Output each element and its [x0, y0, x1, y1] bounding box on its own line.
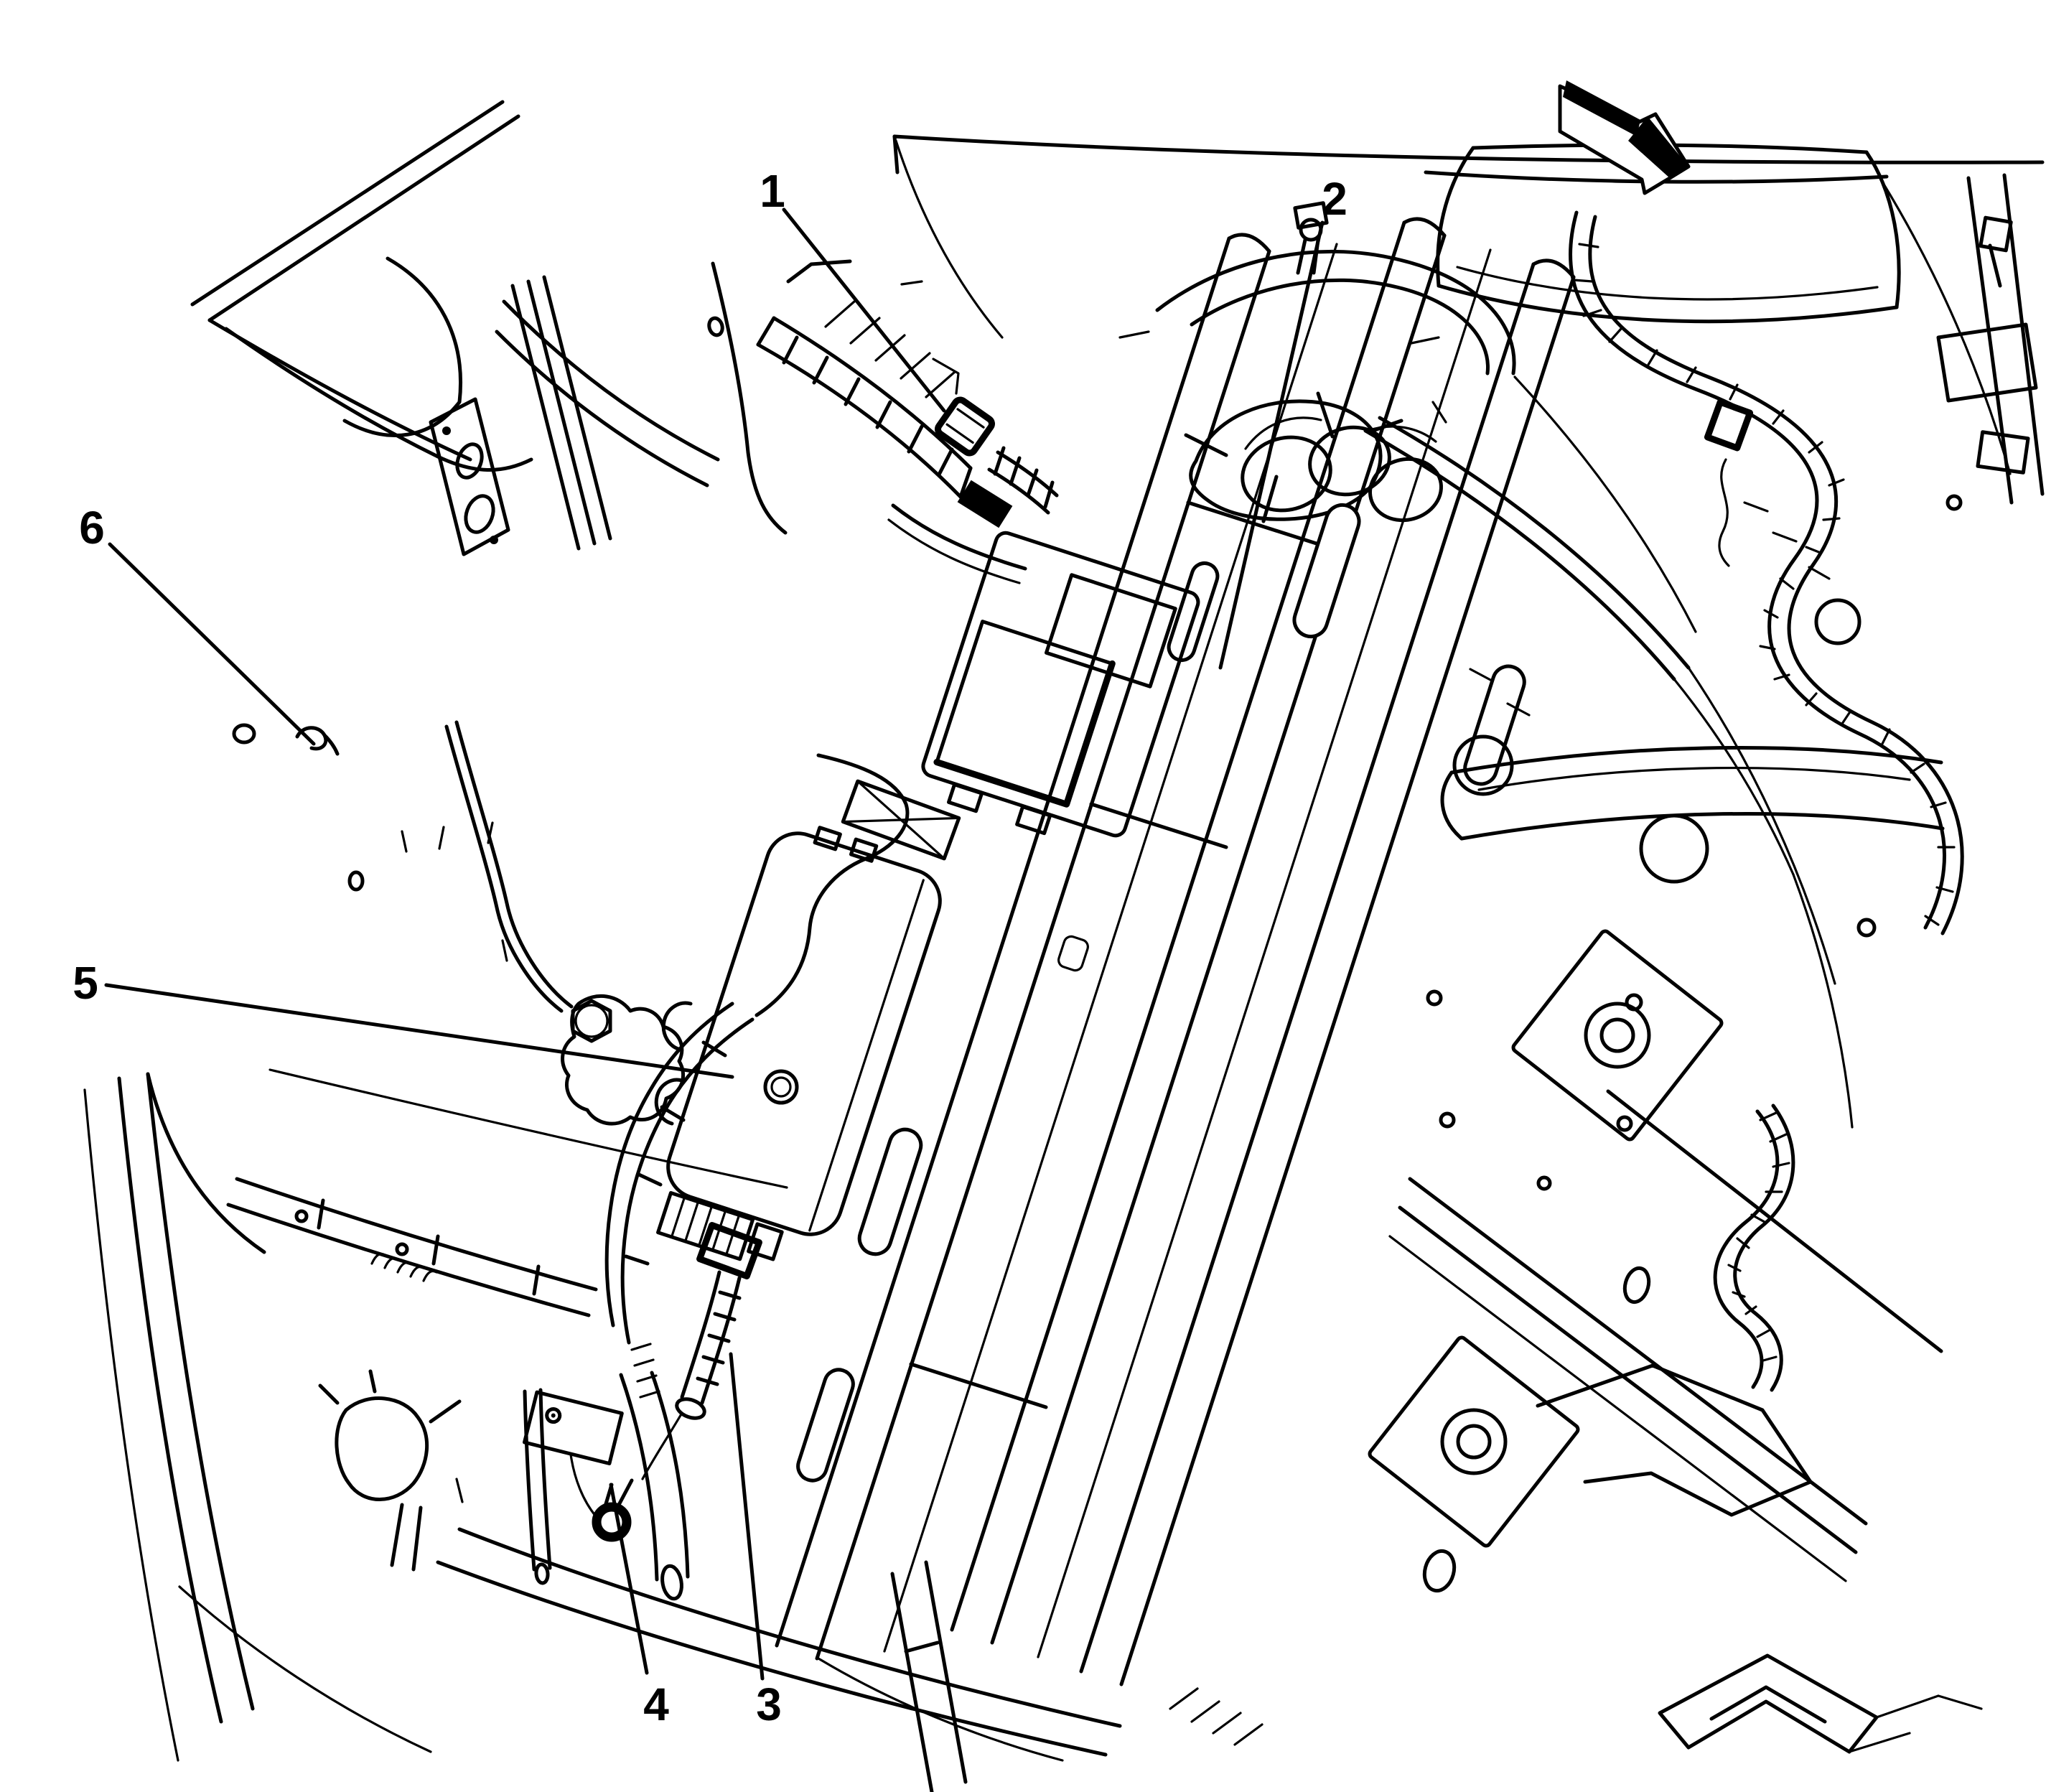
bulkhead-harness-connector	[915, 531, 1201, 857]
line-art-stroke	[902, 281, 922, 284]
line-art-stroke	[622, 1019, 752, 1343]
line-art-stroke	[639, 1175, 660, 1185]
callout-6-label: 6	[79, 502, 105, 554]
line-art-stroke	[1621, 1266, 1652, 1305]
seat-anchor-pad	[1368, 1336, 1580, 1548]
line-art-stroke	[846, 379, 859, 404]
line-art-stroke	[889, 520, 1019, 583]
line-art-stroke	[350, 872, 363, 890]
floor-panel-line-art	[85, 102, 2042, 1792]
tunnel-rails	[656, 219, 1574, 1684]
line-art-stroke	[937, 622, 1112, 805]
diagram-canvas: 1 2 3 4 5 6	[0, 0, 2046, 1792]
line-art-stroke	[320, 1371, 459, 1422]
line-art-stroke	[758, 345, 961, 497]
line-art-stroke	[228, 1205, 589, 1315]
line-art-stroke	[461, 492, 498, 536]
line-art-stroke	[1390, 1236, 1846, 1581]
line-art-stroke	[1674, 679, 1793, 874]
callouts: 1 2 3 4 5 6	[73, 165, 1347, 1730]
line-art-stroke	[1318, 393, 1332, 437]
callout-3-label: 3	[756, 1679, 782, 1730]
line-art-stroke	[576, 1005, 607, 1037]
callout-5-label: 5	[73, 957, 98, 1009]
service-manual-illustration: 1 2 3 4 5 6	[0, 0, 2046, 1792]
seat-bracket-strap	[1538, 1366, 1811, 1515]
module-connector-item3	[643, 1226, 759, 1479]
line-art-stroke	[1298, 240, 1305, 273]
line-art-stroke	[1849, 1696, 1981, 1752]
line-art-stroke	[621, 1375, 657, 1579]
line-art-stroke	[1881, 179, 2010, 474]
line-art-stroke	[119, 1078, 221, 1722]
line-art-stroke	[270, 1070, 787, 1187]
right-floor-pan	[1368, 503, 1981, 1752]
line-art-stroke	[1038, 250, 1490, 1657]
line-art-stroke	[179, 1587, 431, 1752]
line-art-stroke	[1121, 277, 1574, 1684]
line-art-stroke	[619, 1480, 632, 1505]
line-art-stroke	[1688, 668, 1835, 984]
line-art-stroke	[1512, 930, 1724, 1142]
line-art-stroke	[814, 358, 827, 383]
line-art-stroke	[1368, 1336, 1580, 1548]
line-art-stroke	[1859, 920, 1874, 935]
line-art-stroke	[234, 725, 254, 742]
line-art-stroke	[1641, 816, 1707, 882]
chevron-bracket	[1660, 1656, 1877, 1752]
line-art-stroke	[757, 755, 907, 1015]
rear-shelf-edge	[894, 136, 2042, 337]
line-art-stroke	[826, 302, 854, 327]
line-art-stroke	[911, 1364, 1046, 1407]
line-art-stroke	[1428, 991, 1441, 1004]
ladder-channel	[758, 302, 971, 497]
line-art-stroke	[1948, 496, 1961, 509]
line-art-stroke	[939, 449, 952, 475]
callout-5-leader	[106, 985, 732, 1077]
line-art-stroke	[1586, 1004, 1649, 1067]
line-art-stroke	[707, 317, 724, 337]
line-art-stroke	[1170, 1689, 1262, 1745]
line-art-stroke	[551, 1413, 556, 1418]
rail-slot	[856, 1126, 925, 1259]
line-art-stroke	[818, 1658, 1062, 1760]
line-art-stroke	[1479, 768, 1910, 790]
line-art-stroke	[713, 263, 785, 533]
line-art-stroke	[948, 785, 981, 811]
line-art-stroke	[926, 1562, 966, 1782]
line-art-stroke	[1793, 874, 1852, 1127]
line-art-stroke	[1420, 1548, 1458, 1594]
line-art-stroke	[1618, 1117, 1631, 1130]
line-art-stroke	[1439, 286, 1897, 322]
line-art-stroke	[438, 457, 531, 470]
line-art-stroke	[909, 426, 922, 452]
line-art-stroke	[1441, 1114, 1454, 1126]
line-art-stroke	[1438, 148, 1473, 286]
line-art-stroke	[1990, 246, 2000, 286]
line-art-stroke	[457, 722, 571, 1007]
line-art-stroke	[1191, 401, 1381, 519]
callout-5: 5	[73, 957, 732, 1077]
line-art-stroke	[524, 1392, 622, 1463]
line-art-stroke	[896, 141, 1002, 337]
line-art-stroke	[1091, 804, 1226, 847]
line-art-stroke	[817, 251, 1269, 1658]
pigtail-connector	[1707, 402, 1750, 448]
callout-2-label: 2	[1322, 173, 1347, 225]
line-art-stroke	[490, 536, 498, 544]
line-art-stroke	[571, 1455, 596, 1516]
line-art-stroke	[646, 815, 951, 1284]
rail-slot	[1290, 501, 1363, 641]
seat-anchor-pad	[1512, 930, 1724, 1142]
line-art-stroke	[457, 1479, 462, 1502]
line-art-stroke	[210, 116, 518, 320]
callout-4-label: 4	[643, 1679, 669, 1730]
line-art-stroke	[935, 398, 994, 455]
callout-1-label: 1	[760, 165, 785, 217]
line-art-stroke	[935, 398, 994, 455]
line-art-stroke	[1715, 1111, 1778, 1387]
ring-terminal	[597, 1507, 627, 1537]
line-art-stroke	[447, 727, 561, 1011]
line-art-stroke	[237, 1179, 596, 1289]
line-art-stroke	[704, 1357, 723, 1363]
line-art-stroke	[1081, 264, 1533, 1671]
line-art-stroke	[1400, 1208, 1856, 1552]
ground-ring-and-hoses	[524, 1373, 688, 1600]
line-art-stroke	[992, 235, 1444, 1643]
line-art-stroke	[1457, 267, 1877, 299]
line-art-stroke	[1981, 218, 2011, 251]
line-art-stroke	[528, 281, 594, 543]
line-art-stroke	[513, 286, 579, 549]
line-art-stroke	[210, 320, 470, 459]
callout-6-leader	[110, 544, 314, 744]
line-art-stroke	[660, 1564, 684, 1600]
connector-terminal-grid	[937, 622, 1112, 805]
line-art-stroke	[892, 1574, 932, 1792]
line-art-stroke	[906, 1643, 938, 1651]
line-art-stroke	[1533, 261, 1574, 277]
line-art-stroke	[524, 1392, 622, 1463]
callout-4: 4	[611, 1485, 669, 1730]
floor-grommet-hole	[337, 1399, 427, 1500]
line-art-stroke	[774, 318, 971, 468]
line-art-stroke	[1229, 235, 1269, 251]
line-art-stroke	[544, 277, 610, 538]
line-art-stroke	[1719, 459, 1729, 566]
line-art-stroke	[573, 1001, 610, 1041]
left-floor-details	[234, 722, 787, 1187]
line-art-stroke	[1538, 1177, 1550, 1189]
line-art-stroke	[1938, 325, 2036, 401]
line-art-stroke	[397, 1244, 407, 1254]
line-art-stroke	[1120, 332, 1149, 337]
pillar-trim-panel	[192, 102, 718, 554]
line-art-stroke	[1246, 418, 1321, 449]
callout-1: 1	[760, 165, 944, 411]
floor-crossmember	[438, 1529, 1262, 1792]
line-art-stroke	[998, 452, 1057, 495]
line-art-stroke	[1057, 935, 1090, 972]
control-module	[646, 755, 958, 1284]
line-art-stroke	[709, 1335, 729, 1341]
line-art-stroke	[345, 258, 461, 436]
line-art-stroke	[632, 1344, 659, 1397]
line-art-stroke	[784, 337, 797, 363]
line-art-stroke	[1458, 1426, 1490, 1457]
line-art-stroke	[1608, 1091, 1941, 1351]
line-art-stroke	[1816, 600, 1859, 643]
line-art-stroke	[877, 402, 890, 427]
line-art-stroke	[1442, 1410, 1505, 1473]
harness-connector-item1	[935, 398, 1057, 528]
line-art-stroke	[758, 318, 774, 345]
line-art-stroke	[296, 1211, 307, 1221]
line-art-stroke	[652, 1373, 688, 1577]
line-art-stroke	[319, 1200, 538, 1294]
line-art-stroke	[536, 1564, 548, 1583]
callout-3-leader	[731, 1354, 762, 1679]
line-art-stroke	[1515, 377, 1696, 632]
rocker-sill	[85, 1074, 596, 1760]
line-art-stroke	[148, 1074, 253, 1709]
line-art-stroke	[1411, 337, 1439, 343]
line-art-stroke	[1735, 1106, 1793, 1390]
front-direction-arrow-icon	[1560, 80, 1688, 193]
right-body-side	[1881, 175, 2042, 509]
callout-3: 3	[731, 1354, 782, 1730]
line-art-stroke	[392, 1505, 421, 1569]
line-art-stroke	[442, 426, 451, 435]
callout-1-leader	[784, 210, 944, 411]
line-art-stroke	[1602, 1019, 1633, 1051]
line-art-stroke	[1263, 477, 1276, 521]
line-art-stroke	[1462, 813, 1943, 839]
line-art-stroke	[952, 223, 1404, 1630]
line-art-stroke	[715, 1314, 734, 1320]
line-art-stroke	[772, 1078, 790, 1096]
line-art-stroke	[626, 1256, 648, 1264]
callout-6: 6	[79, 502, 314, 744]
line-art-stroke	[192, 102, 503, 304]
module-grommet	[765, 1071, 797, 1103]
